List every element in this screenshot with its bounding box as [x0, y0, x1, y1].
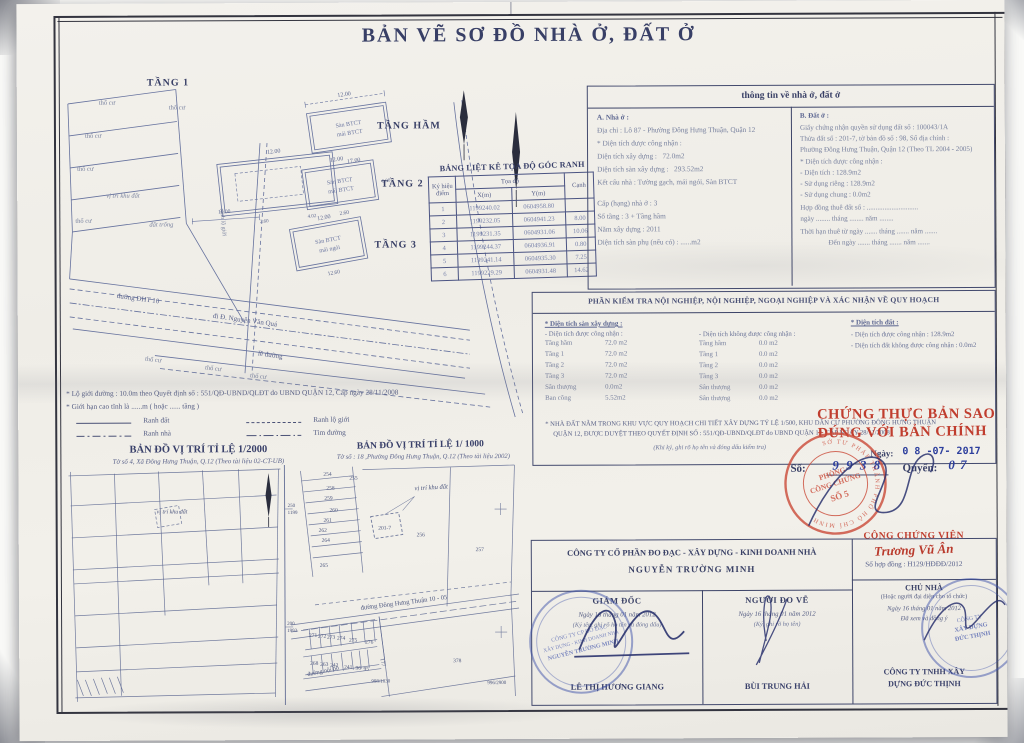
- legend-tim-duong: Tim đường: [313, 429, 346, 438]
- owner-name-line1: CÔNG TY TNHH XÂY: [852, 667, 996, 677]
- road-boundary-note: * Lộ giới đường : 10.0m theo Quyết định …: [66, 388, 398, 398]
- svg-text:276: 276: [365, 640, 374, 646]
- col-point-header: Ký hiệuđiểm: [428, 177, 456, 204]
- info-a-build-area: Diện tích xây dựng : 72.0m2: [597, 151, 787, 161]
- certify-book-label: Quyển:: [902, 462, 937, 475]
- info-b-lease: Hợp đồng thuê đất số : .................…: [800, 203, 990, 212]
- sign-note: (Khi ký, ghi rõ họ tên và đóng dấu kiểm …: [653, 444, 766, 452]
- floor-area-value: 293.52m2: [674, 164, 703, 173]
- inspection-not-recognized-col: - Diện tích không được công nhận : Tầng …: [699, 331, 851, 405]
- page-title: BẢN VẼ SƠ ĐỒ NHÀ Ở, ĐẤT Ở: [328, 23, 728, 48]
- height-limit-note: * Giới hạn cao tĩnh là ......m ( hoặc ..…: [66, 402, 199, 411]
- info-column-divider: [791, 107, 793, 286]
- floor3-plan: 12.00 12.60 Sàn BTCT mái ngói: [288, 209, 370, 283]
- notary-seal: SỞ TƯ PHÁP THÀNH PHỐ HỒ CHÍ MINH PHÒNG C…: [780, 428, 890, 538]
- surveyor-note: (Ký, ghi rõ họ tên): [702, 621, 852, 629]
- map-1000-subtitle: Tờ số : 18 ,Phường Đông Hưng Thuận, Q.12…: [310, 453, 536, 462]
- basement-san-label: Sàn BTCT: [335, 120, 362, 130]
- owner-name-line2: DỰNG ĐỨC THỊNH: [852, 679, 996, 689]
- info-a-address: Địa chỉ : Lô 87 - Phường Đông Hưng Thuận…: [597, 125, 787, 135]
- inspection-title: PHẦN KIỂM TRA NỘI NGHIỆP, NỘI NGHIỆP, NG…: [533, 296, 995, 307]
- info-box-title: thông tin về nhà ở, đất ở: [588, 90, 994, 103]
- info-a-structure: Kết cấu nhà : Tường gạch, mái ngói, Sàn …: [597, 177, 787, 187]
- info-a-aux: Diện tích sàn phụ (nếu có) : ......m2: [597, 237, 787, 247]
- certify-book-value: 0 7: [948, 458, 967, 473]
- certify-date-value: 0 8 -07- 2017: [902, 446, 980, 458]
- info-b-area: - Diện tích : 128.9m2: [800, 168, 990, 177]
- floor-area-heading: * Diện tích sàn xây dựng :: [545, 319, 695, 328]
- area-row: Tầng hầm0.0 m2: [699, 338, 851, 350]
- info-a-year: Năm xây dựng : 2011: [597, 224, 787, 234]
- company-name-line1: CÔNG TY CỔ PHẦN ĐO ĐẠC - XÂY DỰNG - KINH…: [532, 548, 852, 559]
- svg-text:268: 268: [310, 661, 319, 667]
- info-b-term-end: Đến ngày ....... tháng ....... năm .....…: [800, 238, 990, 247]
- tho-cu-label: thổ cư: [99, 100, 115, 108]
- surveyor-name: BÙI TRUNG HẢI: [702, 682, 852, 692]
- house-dim-b2: 4.02: [307, 214, 317, 220]
- seal-line-3: SỐ 5: [829, 488, 850, 504]
- map-2000-parcel-lines: [68, 469, 293, 702]
- land-not-recognized: - Diện tích đất không được công nhận : 0…: [851, 342, 991, 350]
- area-row: Tầng hầm72.0 m2: [545, 337, 695, 349]
- maps-divider: [284, 465, 285, 705]
- floor2-label: TẦNG 2: [381, 178, 423, 190]
- info-b-lease-date: ngày ........ tháng ........ năm .......…: [800, 214, 990, 223]
- land-recognized: - Diện tích được công nhận : 128.9m2: [851, 331, 991, 339]
- info-a-floor-area: Diện tích sàn xây dựng : 293.52m2: [597, 164, 787, 174]
- fold-mark: [510, 2, 511, 14]
- legend-ranh-nha: Ranh nhà: [143, 429, 171, 438]
- svg-text:241: 241: [344, 665, 353, 671]
- map-2000-north-arrow-icon: [265, 473, 271, 527]
- svg-text:265: 265: [320, 563, 329, 569]
- info-b-shared: - Sử dụng chung : 0.0m2: [800, 190, 990, 199]
- info-b-parcel: Thửa đất số : 201-7, tờ bản đồ số : 98, …: [800, 134, 990, 143]
- svg-text:96: 96: [356, 666, 362, 672]
- floor2-san-label: Sàn BTCT: [327, 177, 354, 187]
- floor3-label: TẦNG 3: [374, 239, 416, 251]
- area-row: Tầng 172.0 m2: [545, 348, 695, 360]
- svg-text:274: 274: [337, 636, 346, 642]
- legend-ranh-dat: Ranh đất: [143, 416, 169, 425]
- basement-label: TẦNG HẦM: [377, 120, 441, 132]
- floor3-dim-bottom: 12.60: [327, 269, 340, 277]
- floor2-mai-label: mái BTCT: [328, 186, 355, 196]
- land-area-heading: * Diện tích đất :: [851, 318, 991, 327]
- director-note: (Ký tên, ghi rõ họ tên và đóng dấu): [532, 621, 702, 629]
- director-date: Ngày 16 tháng 01 năm 2012: [532, 611, 702, 620]
- info-b-recognized: * Diện tích được công nhận :: [800, 157, 990, 166]
- inspection-recognized-col: * Diện tích sàn xây dựng : - Diện tích đ…: [545, 319, 695, 404]
- svg-text:273: 273: [327, 635, 336, 641]
- basement-mai-label: mái BTCT: [337, 129, 364, 139]
- info-b-cert: Giấy chứng nhận quyền sử dụng đất số : 1…: [800, 123, 990, 132]
- svg-text:275: 275: [349, 638, 358, 644]
- build-area-value: 72.0m2: [662, 151, 684, 160]
- floor2-dim-top: 12.00: [329, 156, 343, 164]
- signature-table: CÔNG TY CỔ PHẦN ĐO ĐẠC - XÂY DỰNG - KINH…: [531, 538, 998, 706]
- location-maps-sketch: 254255 258259 260261 262264 265201-7 256…: [62, 464, 539, 706]
- area-row: Tầng 272.0 m2: [545, 359, 695, 371]
- owner-subtitle: (Hoặc người đại diện cho tổ chức): [852, 593, 996, 601]
- info-a-grade: Cấp (hạng) nhà ở : 3: [597, 198, 787, 208]
- owner-title: CHỦ NHÀ: [852, 583, 996, 593]
- area-row: Sân thượng0.0 m2: [699, 382, 851, 394]
- svg-text:261: 261: [324, 518, 333, 524]
- svg-text:262: 262: [319, 528, 328, 534]
- area-row: Sân thượng0.0 m2: [699, 393, 851, 405]
- floor3-mai-label: mái ngói: [319, 245, 341, 255]
- map-2000-title: BẢN ĐỒ VỊ TRÍ TỈ LỆ 1/2000: [88, 444, 308, 457]
- area-row: Sân thượng0.0m2: [545, 381, 695, 393]
- vacant-land-label: đất trống: [149, 221, 173, 229]
- tho-cu-label: thổ cư: [75, 218, 91, 226]
- house-dim-b1: 2.60: [260, 219, 270, 225]
- surveyor-title: NGƯỜI ĐO VẼ: [702, 596, 852, 606]
- director-title: GIÁM ĐỐC: [532, 596, 702, 607]
- house-dim-top: 12.00: [267, 148, 281, 155]
- owner-header-divider: [852, 579, 996, 581]
- tho-cu-label: thổ cư: [169, 104, 185, 112]
- map-parcel-numbers: 254255 258259 260261 262264 265201-7 256…: [308, 471, 484, 673]
- area-row: Ban công5.52m2: [545, 392, 695, 404]
- site-position-label: vị trí khu đất: [106, 193, 139, 201]
- company-name-line2: NGUYỄN TRƯỜNG MINH: [532, 564, 852, 576]
- director-name: LÊ THỊ HƯƠNG GIANG: [532, 682, 702, 692]
- svg-text:1199: 1199: [288, 511, 298, 516]
- svg-text:998/1830: 998/1830: [371, 680, 390, 685]
- svg-text:250: 250: [288, 504, 296, 509]
- owner-note: Đã xem và đồng ý: [852, 615, 996, 623]
- info-column-b: B. Đất ở : Giấy chứng nhận quyền sử dụng…: [800, 111, 991, 247]
- inspection-land-col: * Diện tích đất : - Diện tích được công …: [851, 318, 991, 350]
- photo-of-document: BẢN VẼ SƠ ĐỒ NHÀ Ở, ĐẤT Ở 12.00 2.60 4.0…: [0, 0, 1024, 743]
- info-a-heading: A. Nhà ở :: [597, 112, 787, 122]
- surveyor-date: Ngày 16 tháng 01 năm 2012: [702, 611, 852, 619]
- info-b-private: - Sử dụng riêng : 128.9m2: [800, 179, 990, 188]
- svg-text:254: 254: [323, 472, 332, 478]
- svg-text:1993: 1993: [287, 629, 298, 634]
- area-row: Tầng 30.0 m2: [699, 371, 851, 383]
- svg-text:264: 264: [322, 538, 331, 544]
- basement-dim-bottom: 17.00: [347, 157, 361, 165]
- info-column-a: A. Nhà ở : Địa chỉ : Lô 87 - Phường Đông…: [597, 112, 788, 247]
- svg-text:258: 258: [326, 486, 335, 492]
- svg-text:260: 260: [329, 508, 338, 514]
- parcel-strip-lines: [68, 89, 245, 324]
- svg-text:996/2900: 996/2900: [487, 681, 506, 686]
- document-sheet: BẢN VẼ SƠ ĐỒ NHÀ Ở, ĐẤT Ở 12.00 2.60 4.0…: [16, 0, 1007, 741]
- floor3-dim-top: 12.00: [317, 214, 331, 222]
- map-2000-site-label: vị trí khu đất: [157, 509, 188, 516]
- svg-text:177: 177: [379, 658, 386, 667]
- info-b-ward: Phường Đông Hưng Thuận, Quận 12 (Theo TL…: [800, 145, 990, 154]
- legend-swatch-dashdot: [76, 436, 131, 437]
- tho-cu-label: thổ cư: [85, 133, 101, 141]
- info-b-heading: B. Đất ở :: [800, 111, 990, 120]
- company-header-divider: [532, 590, 852, 592]
- owner-date: Ngày 16 tháng 01 năm 2012: [852, 605, 996, 613]
- svg-text:95: 95: [364, 667, 370, 673]
- legend-swatch-centerline: [246, 435, 301, 436]
- info-b-term: Thời hạn thuê từ ngày ....... tháng ....…: [800, 227, 990, 236]
- svg-text:272: 272: [318, 634, 327, 640]
- area-row: Tầng 372.0 m2: [545, 370, 695, 382]
- inspection-title-divider: [533, 311, 995, 314]
- svg-text:200: 200: [287, 622, 295, 627]
- tho-cu-label: thổ cư: [77, 166, 93, 174]
- floor1-label: TẦNG 1: [147, 77, 189, 89]
- svg-text:255: 255: [349, 476, 358, 482]
- svg-text:271: 271: [309, 633, 318, 639]
- coordinate-table-block: BẢNG LIỆT KÊ TỌA ĐỘ GÓC RANH Ký hiệuđiểm…: [429, 162, 596, 280]
- legend-ranh-lo-gioi: Ranh lộ giới: [313, 416, 349, 425]
- basement-dim-top: 12.00: [337, 91, 351, 99]
- area-row: Tầng 10.0 m2: [699, 349, 851, 361]
- svg-text:259: 259: [324, 496, 333, 502]
- coordinate-table: Ký hiệuđiểm Tọa độ Cạnh X(m) Y(m) 111992…: [428, 172, 597, 282]
- floor2-dim-bottom: 2.60: [339, 210, 350, 217]
- area-row: Tầng 20.0 m2: [699, 360, 851, 372]
- svg-text:256: 256: [417, 532, 426, 538]
- info-a-recognized: * Diện tích được công nhận :: [597, 138, 787, 148]
- svg-text:201-7: 201-7: [378, 526, 391, 532]
- certify-line-1: CHỨNG THỰC BẢN SAO: [806, 406, 1006, 424]
- info-a-floors: Số tầng : 3 + Tầng hầm: [597, 211, 787, 221]
- svg-text:257: 257: [476, 547, 485, 553]
- house-land-info-box: thông tin về nhà ở, đất ở A. Nhà ở : Địa…: [587, 84, 996, 290]
- svg-text:378: 378: [453, 658, 462, 664]
